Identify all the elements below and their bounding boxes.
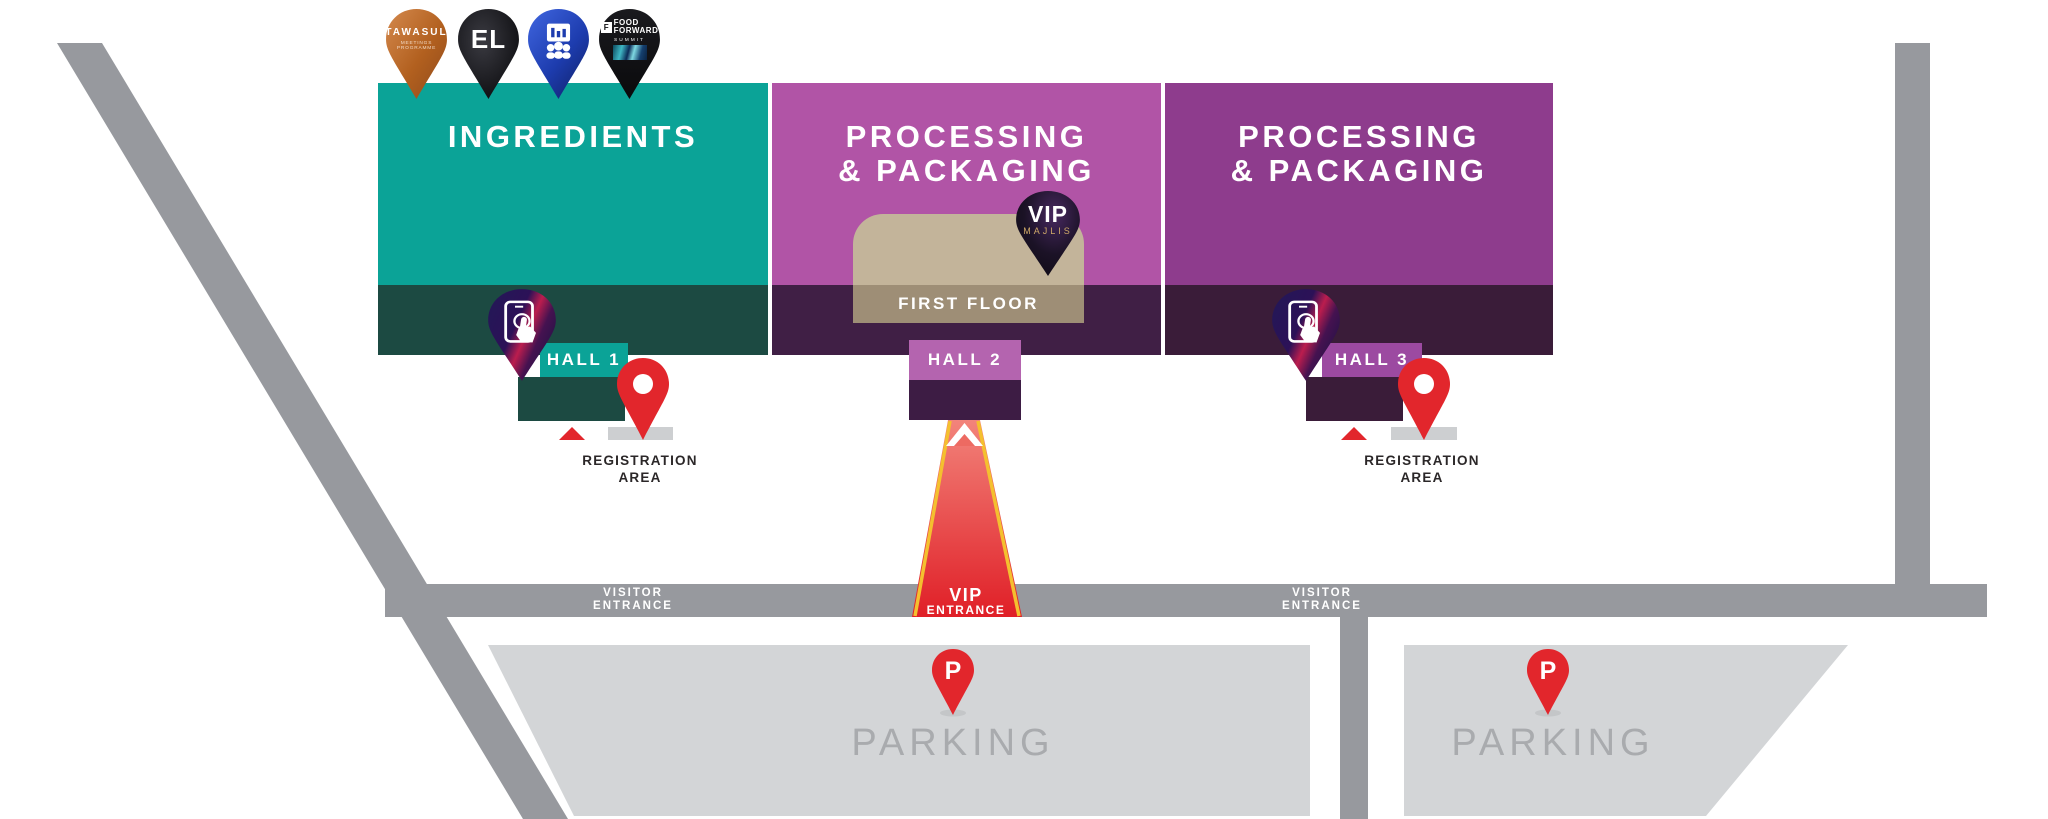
el-pin-content: EL bbox=[457, 8, 520, 70]
el-map-pin[interactable]: EL bbox=[457, 8, 520, 100]
parking-label-1: PARKING bbox=[743, 722, 1163, 765]
food-forward-logo-icon: F bbox=[601, 22, 612, 33]
entrance-arrow-icon bbox=[559, 427, 585, 440]
tawasul-label: TAWASUL bbox=[385, 27, 447, 38]
visitor-entrance-line2: ENTRANCE bbox=[1212, 600, 1432, 613]
tawasul-map-pin[interactable]: TAWASUL MEETINGS PROGRAMME bbox=[385, 8, 448, 100]
vip-majlis-pin-content: VIP MAJLIS bbox=[1015, 190, 1081, 248]
food-forward-label: FOOD FORWARD bbox=[614, 19, 659, 36]
hall3-digital-registration-pin[interactable] bbox=[1271, 288, 1341, 382]
vip-entrance-label: VIP ENTRANCE bbox=[876, 587, 1056, 617]
parking-pin-letter: P bbox=[1540, 657, 1557, 685]
visitor-entrance-label-1: VISITOR ENTRANCE bbox=[523, 587, 743, 613]
pin-shape bbox=[1271, 288, 1341, 382]
markers-layer: P P bbox=[0, 0, 2048, 819]
el-label: EL bbox=[471, 24, 506, 55]
vip-majlis-line1: VIP bbox=[1028, 203, 1068, 225]
registration-line2: AREA bbox=[1312, 469, 1532, 486]
registration-line1: REGISTRATION bbox=[530, 452, 750, 469]
tawasul-sublabel: MEETINGS PROGRAMME bbox=[385, 41, 448, 51]
food-forward-label-line2: FORWARD bbox=[614, 27, 659, 36]
parking-pin-2[interactable]: P bbox=[1527, 649, 1569, 715]
parking-pin-1[interactable]: P bbox=[932, 649, 974, 715]
pin-shape bbox=[487, 288, 557, 382]
hall1-digital-registration-pin[interactable] bbox=[487, 288, 557, 382]
vip-entrance-line2: ENTRANCE bbox=[876, 604, 1056, 617]
venue-map-canvas: INGREDIENTS PROCESSING & PACKAGING PROCE… bbox=[0, 0, 2048, 819]
vip-majlis-line2: MAJLIS bbox=[1023, 226, 1073, 236]
registration-area-label-2: REGISTRATION AREA bbox=[1312, 452, 1532, 486]
registration-line1: REGISTRATION bbox=[1312, 452, 1532, 469]
vip-majlis-pin[interactable]: VIP MAJLIS bbox=[1015, 190, 1081, 277]
vip-entrance-line1: VIP bbox=[876, 587, 1056, 604]
food-forward-photo-strip bbox=[613, 45, 647, 60]
visitor-entrance-label-2: VISITOR ENTRANCE bbox=[1212, 587, 1432, 613]
parking-pin-letter: P bbox=[945, 657, 962, 685]
food-forward-map-pin[interactable]: F FOOD FORWARD SUMMIT bbox=[598, 8, 661, 100]
visitor-entrance-line1: VISITOR bbox=[523, 587, 743, 600]
entrance-arrow-icon bbox=[1341, 427, 1367, 440]
registration-area-label-1: REGISTRATION AREA bbox=[530, 452, 750, 486]
parking-label-2: PARKING bbox=[1343, 722, 1763, 765]
food-forward-sublabel: SUMMIT bbox=[614, 38, 645, 43]
conference-map-pin[interactable] bbox=[527, 8, 590, 100]
tawasul-pin-content: TAWASUL MEETINGS PROGRAMME bbox=[385, 8, 448, 70]
presentation-audience-icon bbox=[546, 24, 570, 59]
visitor-entrance-line2: ENTRANCE bbox=[523, 600, 743, 613]
pin-shape bbox=[527, 8, 590, 100]
food-forward-pin-content: F FOOD FORWARD SUMMIT bbox=[598, 8, 661, 70]
food-forward-logo-row: F FOOD FORWARD bbox=[601, 19, 659, 36]
visitor-entrance-line1: VISITOR bbox=[1212, 587, 1432, 600]
registration-line2: AREA bbox=[530, 469, 750, 486]
